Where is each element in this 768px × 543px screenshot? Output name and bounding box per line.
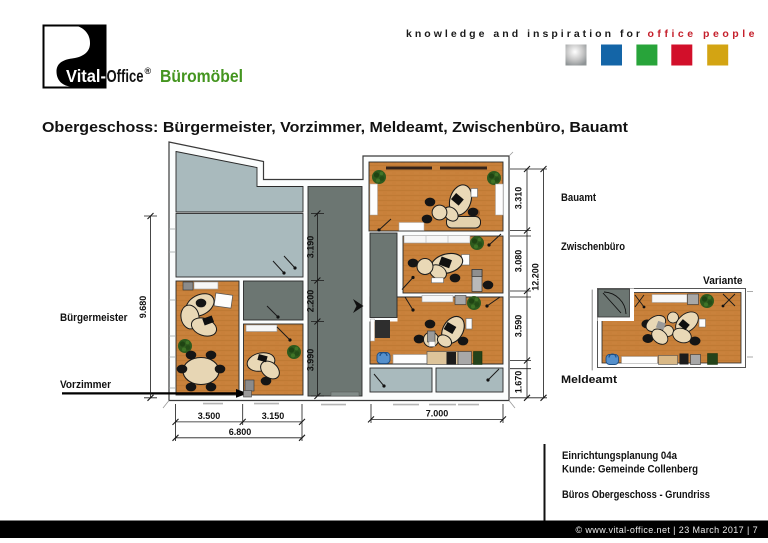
- svg-text:knowledge and inspiration for: knowledge and inspiration for: [406, 28, 640, 40]
- svg-text:Vital-: Vital-: [66, 66, 106, 86]
- svg-text:3.500: 3.500: [198, 411, 221, 421]
- svg-text:Kunde: Gemeinde Collenberg: Kunde: Gemeinde Collenberg: [562, 464, 698, 476]
- svg-text:Obergeschoss: Bürgermeister, V: Obergeschoss: Bürgermeister, Vorzimmer, …: [42, 120, 628, 136]
- svg-text:Büros Obergeschoss - Grundriss: Büros Obergeschoss - Grundriss: [562, 489, 710, 501]
- svg-text:© www.vital-office.net |: © www.vital-office.net | 23 March 2017 |…: [575, 525, 758, 535]
- svg-text:7.000: 7.000: [426, 409, 449, 419]
- svg-text:Bauamt: Bauamt: [561, 192, 596, 204]
- svg-text:Büromöbel: Büromöbel: [160, 66, 243, 86]
- svg-text:6.800: 6.800: [229, 427, 252, 437]
- svg-text:Vorzimmer: Vorzimmer: [60, 379, 112, 391]
- svg-text:9.680: 9.680: [138, 296, 148, 319]
- svg-text:3.990: 3.990: [306, 349, 316, 372]
- svg-text:Zwischenbüro: Zwischenbüro: [561, 241, 625, 253]
- svg-text:Meldeamt: Meldeamt: [561, 374, 617, 386]
- svg-text:12.200: 12.200: [531, 263, 541, 291]
- svg-text:Bürgermeister: Bürgermeister: [60, 312, 128, 324]
- svg-text:Variante: Variante: [703, 275, 743, 287]
- svg-text:2.200: 2.200: [306, 290, 316, 313]
- svg-text:3.150: 3.150: [262, 411, 285, 421]
- svg-text:Einrichtungsplanung 04a: Einrichtungsplanung 04a: [562, 450, 678, 462]
- svg-text:1.670: 1.670: [514, 371, 524, 394]
- svg-text:3.190: 3.190: [306, 236, 316, 259]
- svg-text:Office: Office: [107, 66, 144, 86]
- svg-text:3.310: 3.310: [514, 187, 524, 210]
- svg-text:3.080: 3.080: [514, 250, 524, 273]
- svg-text:office people: office people: [648, 28, 755, 40]
- svg-text:®: ®: [145, 66, 152, 76]
- svg-text:3.590: 3.590: [514, 315, 524, 338]
